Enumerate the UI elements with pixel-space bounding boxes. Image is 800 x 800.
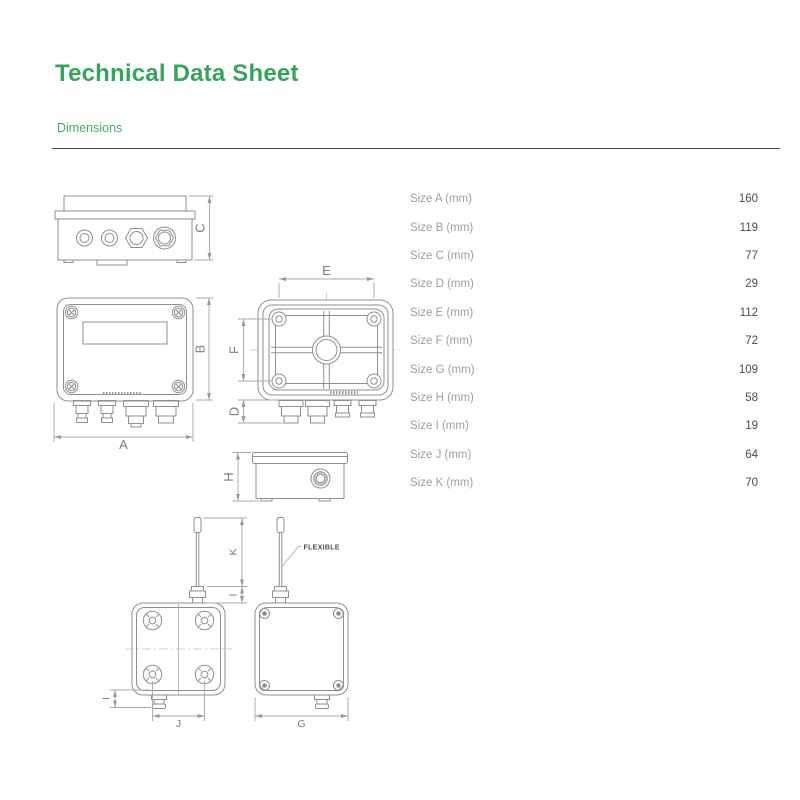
dim-label-i-left: I [101,697,113,700]
antenna-tip [277,518,284,533]
drawings-canvas: C A B [0,0,800,800]
dim-label-a: A [119,437,128,452]
drawing-front-view: A B [54,298,213,452]
drawing-back-view: E F D [227,263,402,423]
dim-label-h: H [221,472,236,481]
dim-label-i: I [228,594,240,597]
dim-label-g: G [297,718,305,730]
dim-label-f: F [227,346,242,354]
flexible-annotation: FLEXIBLE [304,545,340,552]
dim-label-k: K [228,548,240,555]
drawing-bottom-plate-view: K I I J [101,518,248,731]
antenna-tip [194,518,201,533]
dim-label-j: J [176,718,181,730]
drawing-side-view: H [221,453,348,502]
drawing-top-view: C [55,196,214,265]
drawing-bottom-flexible-view: FLEXIBLE G [255,518,348,731]
leader-line [283,547,299,567]
dim-label-e: E [322,263,331,278]
antenna-rod [279,533,282,587]
antenna-rod [196,533,199,587]
dim-label-d: D [227,407,242,416]
dim-label-c: C [193,223,208,232]
dim-label-b: B [193,345,208,354]
